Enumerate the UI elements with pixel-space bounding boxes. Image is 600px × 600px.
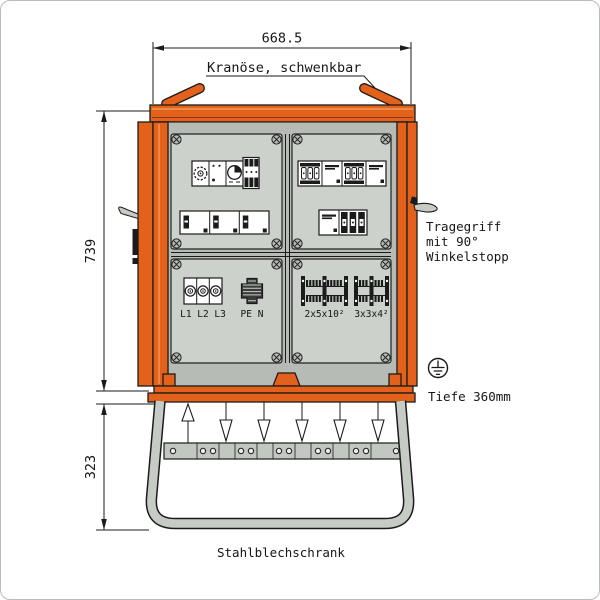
terminal-strip-right-label: 3x3x4²	[354, 309, 388, 320]
arrowhead-icon	[153, 45, 164, 51]
screw-icon	[172, 239, 181, 248]
cable-entry-arrow-down-icon	[372, 402, 384, 441]
cable-clamp	[273, 373, 300, 386]
dim-height-value: 739	[83, 239, 99, 263]
screw-icon	[172, 260, 181, 269]
cable-entry-arrow-down-icon	[334, 402, 346, 441]
crane-eye-callout: Kranöse, schwenkbar	[206, 60, 375, 88]
hinge-block-icon	[133, 229, 139, 255]
bottom-flange-lower	[148, 393, 415, 402]
cable-entry-arrow-down-icon	[296, 402, 308, 441]
handle-icon	[414, 203, 437, 212]
bottom-bracket-left	[163, 374, 175, 386]
arrowhead-icon	[101, 519, 107, 530]
distribution-cabinet-drawing: 668.5 739 323 Kranöse, schwenkbar	[1, 1, 599, 599]
earth-symbol-icon	[429, 359, 448, 378]
mounting-rail	[164, 443, 404, 459]
hinge-block-icon	[133, 258, 139, 264]
handle-label-line3: Winkelstopp	[426, 249, 509, 264]
device-row-meter-timer	[192, 158, 259, 189]
mcb-3pole-icon	[243, 158, 259, 189]
arrowhead-icon	[101, 404, 107, 415]
arrowhead-icon	[101, 380, 107, 391]
side-wall-left-inner	[153, 122, 168, 386]
cable-entry-arrows	[182, 402, 384, 443]
dim-base-value: 323	[83, 455, 99, 479]
phase-terminals-label: L1 L2 L3	[180, 309, 226, 320]
pen-terminal-label: PE N	[241, 309, 264, 320]
dim-width-value: 668.5	[262, 31, 303, 47]
mcb-3pole-icon	[341, 212, 365, 233]
roof-bar	[150, 105, 415, 122]
mcb-3pole-icon	[300, 163, 320, 184]
carry-handle: Tragegriff mit 90° Winkelstopp	[410, 196, 509, 264]
device-row-breakers-bottom	[319, 210, 367, 235]
screw-icon	[172, 135, 181, 144]
arrowhead-icon	[400, 45, 411, 51]
device-row-rcd	[180, 211, 269, 234]
screw-icon	[293, 353, 302, 362]
terminal-strip-left-label: 2x5x10²	[304, 309, 344, 320]
handle-label-line2: mit 90°	[426, 234, 479, 249]
side-wall-right-outer	[407, 122, 417, 386]
screw-icon	[381, 135, 390, 144]
cable-entry-arrow-down-icon	[258, 402, 270, 441]
phase-terminal-block: L1 L2 L3	[180, 278, 226, 320]
device-row-breakers-top	[298, 161, 386, 186]
hinge-pin-icon	[119, 207, 138, 218]
mcb-3pole-icon	[344, 163, 364, 184]
side-wall-right-inner	[397, 122, 407, 386]
screw-icon	[381, 260, 390, 269]
screw-icon	[172, 353, 181, 362]
bottom-flange-upper	[154, 386, 413, 393]
side-wall-left-outer	[138, 122, 153, 386]
screw-icon	[293, 260, 302, 269]
arrowhead-icon	[101, 111, 107, 122]
screw-icon	[293, 135, 302, 144]
screw-icon	[272, 353, 281, 362]
bottom-bracket-right	[389, 374, 401, 386]
cable-entry-arrow-up-icon	[182, 404, 194, 443]
crane-leader-line	[206, 76, 375, 88]
screw-icon	[272, 260, 281, 269]
terminal-strip-left: 2x5x10²	[301, 276, 348, 320]
technical-drawing-canvas: 668.5 739 323 Kranöse, schwenkbar	[0, 0, 600, 600]
handle-label-line1: Tragegriff	[426, 219, 501, 234]
screw-icon	[272, 239, 281, 248]
earth-and-depth: Tiefe 360mm	[428, 359, 511, 405]
cable-entry-arrow-down-icon	[220, 402, 232, 441]
screw-icon	[293, 239, 302, 248]
screw-icon	[272, 135, 281, 144]
depth-label: Tiefe 360mm	[428, 389, 511, 404]
screw-icon	[381, 239, 390, 248]
screw-icon	[381, 353, 390, 362]
rcd-strip	[180, 211, 269, 234]
crane-label: Kranöse, schwenkbar	[207, 60, 361, 76]
cabinet-type-label: Stahlblechschrank	[217, 545, 345, 560]
